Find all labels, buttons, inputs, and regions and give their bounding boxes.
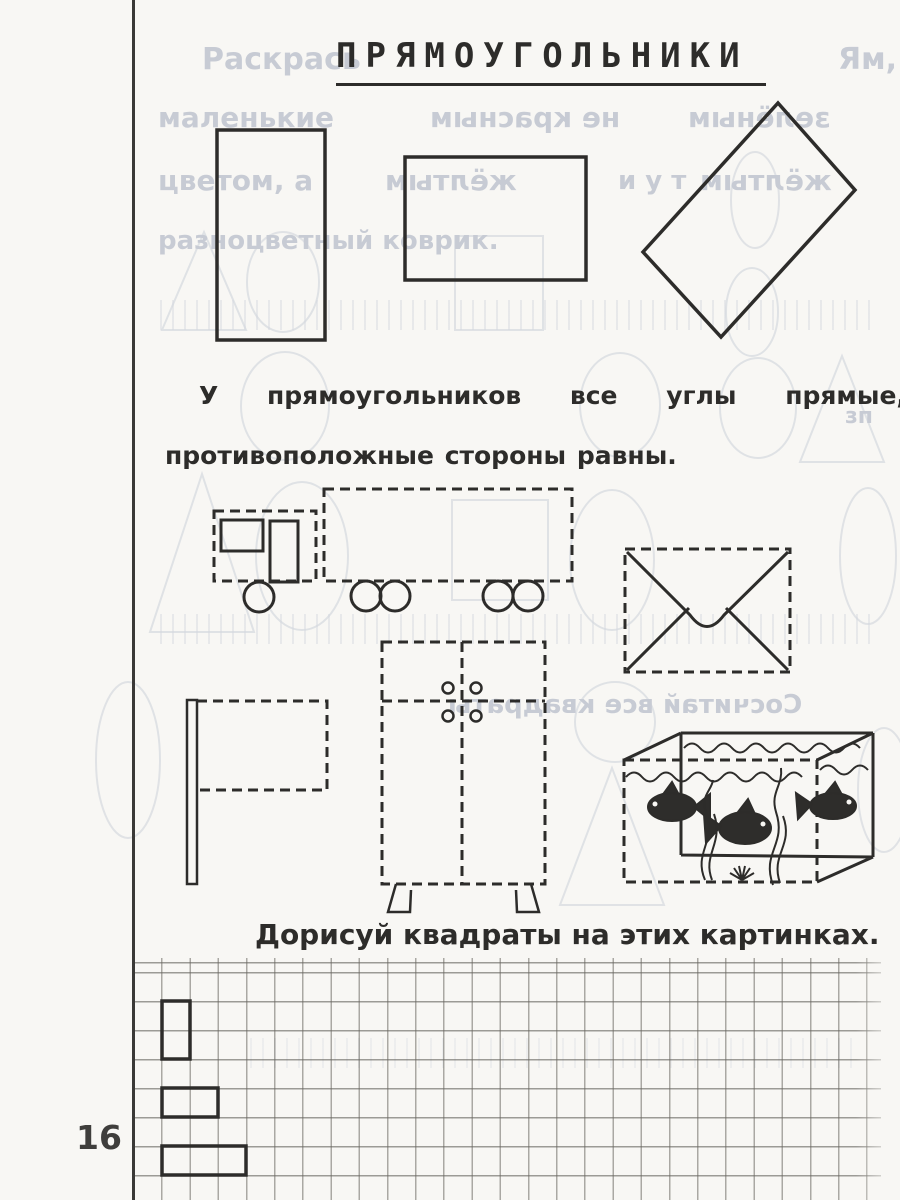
water-waves [626,744,868,782]
grid-rectangles [162,1001,246,1175]
grid-rect-1x2 [162,1001,190,1059]
truck-wheel [483,581,513,611]
truck-wheel [351,581,381,611]
truck-wheel [244,582,274,612]
ground-plant [730,866,754,880]
wardrobe-foot [516,884,539,912]
wide-rectangle-figure [405,157,586,280]
flag-cloth [197,701,327,790]
page-number: 16 [76,1118,122,1157]
fish [648,782,856,844]
flag-figure [187,700,327,884]
grid-rect-3x1 [162,1146,246,1175]
task-instruction: Дорисуй квадраты на этих картинках. [255,918,855,951]
rule-paragraph-line1: У прямоугольников все углы прямые, а [165,366,895,426]
page-title: ПРЯМОУГОЛЬНИКИ [336,36,766,86]
aquarium-figure [624,733,873,885]
wardrobe-figure [382,642,545,912]
truck-window [221,520,263,551]
tall-rectangle-figure [217,130,325,340]
envelope-figure [625,549,790,672]
rule-paragraph: У прямоугольников все углы прямые, а про… [165,366,895,486]
envelope-bottom-folds [627,608,788,670]
truck-wheel [513,581,543,611]
rotated-rectangle-figure [643,103,855,337]
truck-figure [214,489,572,612]
truck-door [270,521,298,582]
truck-wheel [380,581,410,611]
wardrobe-foot [388,884,411,912]
workbook-page: Раскрась Ям, маленькие не красным зелёны… [0,0,900,1200]
flag-pole [187,700,197,884]
rule-paragraph-line2: противоположные стороны равны. [165,426,895,486]
grid-rect-2x1 [162,1088,218,1117]
worksheet-figures [0,0,900,1200]
envelope-flap [627,552,788,627]
